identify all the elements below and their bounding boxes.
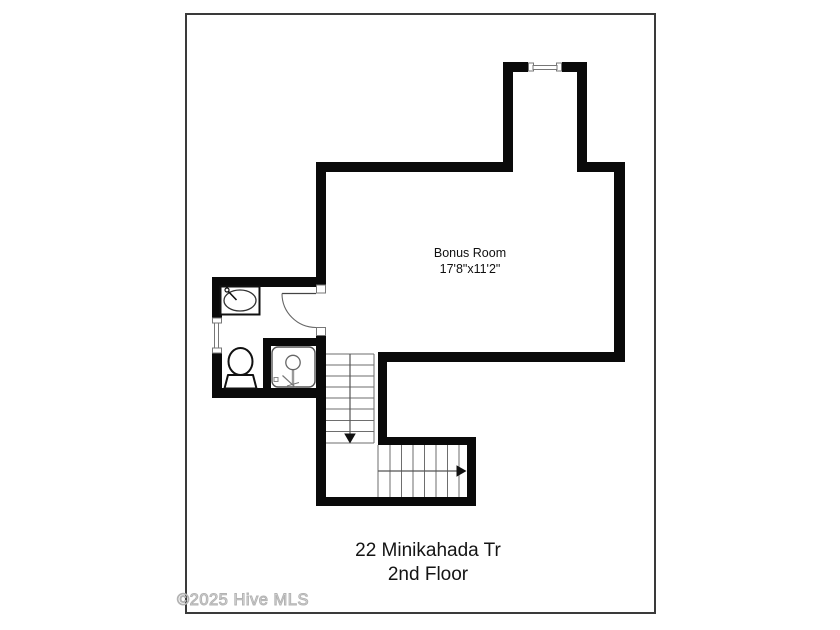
toilet-icon — [225, 348, 257, 389]
room-dimensions: 17'8"x11'2" — [370, 261, 570, 277]
door-jamb — [317, 328, 326, 336]
wall-segment — [316, 335, 326, 506]
arrow-down-icon — [344, 434, 356, 444]
dormer-window — [529, 63, 562, 71]
floor-label: 2nd Floor — [288, 563, 568, 587]
wall-segment — [378, 352, 625, 362]
wall-segment — [263, 338, 271, 398]
toilet-bowl — [229, 348, 253, 375]
wall-segment — [562, 62, 587, 72]
sink-basin — [224, 290, 256, 311]
walls — [212, 62, 625, 506]
address-line: 22 Minikahada Tr — [288, 539, 568, 563]
window-icon — [215, 323, 219, 348]
sink-faucet-knob — [225, 288, 229, 292]
watermark: ©2025 Hive MLS — [177, 591, 309, 610]
room-label-group: Bonus Room 17'8"x11'2" — [370, 245, 570, 277]
shower-head — [286, 355, 300, 369]
room-label: Bonus Room — [370, 245, 570, 261]
wall-segment — [316, 162, 326, 285]
window-icon — [213, 348, 222, 353]
door-jamb — [317, 285, 326, 293]
plan-footer: 22 Minikahada Tr 2nd Floor — [288, 539, 568, 586]
wall-segment — [378, 437, 476, 445]
sink-icon — [221, 287, 260, 315]
shower-drain — [274, 378, 278, 382]
wall-segment — [503, 62, 528, 72]
window-icon — [213, 318, 222, 323]
wall-segment — [467, 437, 476, 506]
wall-segment — [577, 62, 587, 172]
arrow-right-icon — [457, 465, 467, 477]
door-swing-icon — [282, 294, 316, 328]
wall-segment — [614, 162, 625, 362]
floor-plan-page: Bonus Room 17'8"x11'2" 22 Minikahada Tr … — [0, 0, 840, 630]
window-icon — [533, 66, 557, 70]
toilet-tank — [225, 375, 257, 389]
wall-segment — [263, 338, 326, 346]
wall-segment — [503, 62, 513, 172]
wall-segment — [378, 352, 387, 445]
wall-segment — [316, 497, 476, 506]
wall-segment — [316, 162, 513, 172]
bathroom-window — [213, 318, 222, 353]
shower-icon — [272, 347, 315, 388]
floor-plan-drawing — [0, 0, 840, 630]
bathroom-door — [282, 285, 326, 336]
